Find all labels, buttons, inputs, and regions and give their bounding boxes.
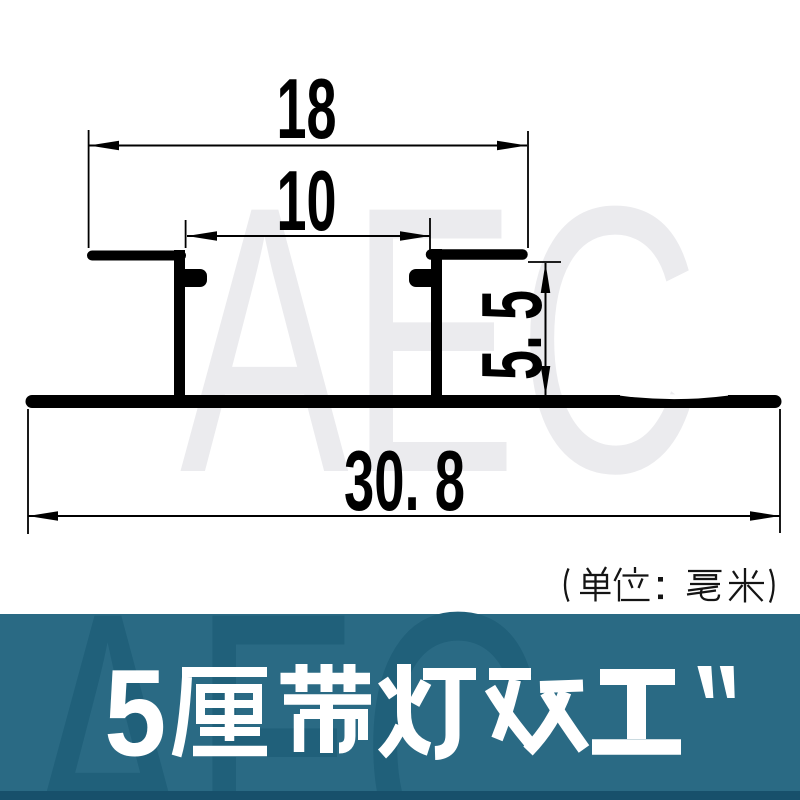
svg-text:5. 5: 5. 5 [465, 290, 560, 380]
svg-text:AEC: AEC [23, 533, 543, 800]
svg-text:18: 18 [277, 62, 337, 157]
svg-text:5: 5 [104, 646, 166, 783]
svg-text:10: 10 [277, 154, 337, 249]
svg-text:30. 8: 30. 8 [344, 434, 465, 529]
